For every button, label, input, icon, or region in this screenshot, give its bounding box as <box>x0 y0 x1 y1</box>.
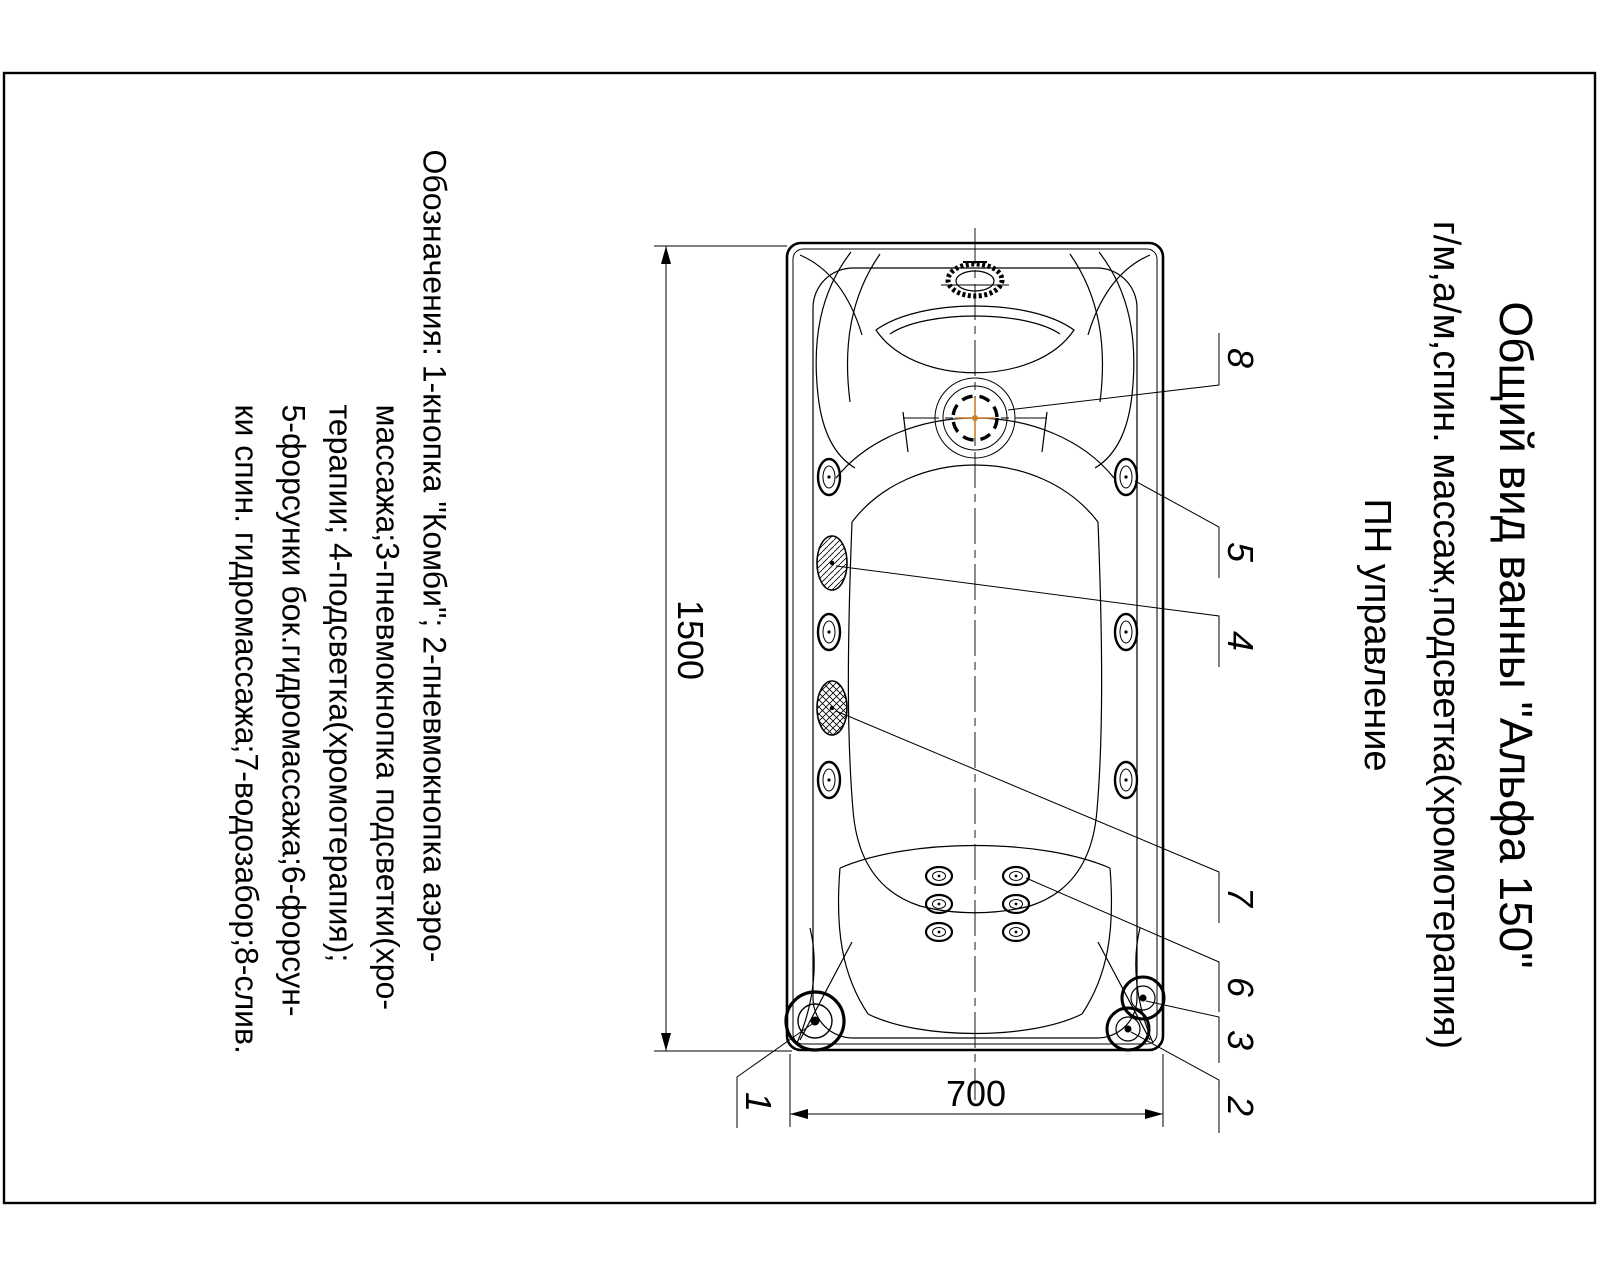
side-jet <box>818 762 840 798</box>
legend-line: терапии; 4-подсветка(хромотерапия); <box>317 150 364 1200</box>
legend-line: ки спин. гидромассажа;7-водозабор;8-слив… <box>223 150 270 1200</box>
back-jet <box>926 923 952 941</box>
side-jet <box>818 614 840 650</box>
legend: Обозначения: 1-кнопка "Комби"; 2-пневмок… <box>223 150 458 1200</box>
side-jet <box>1115 762 1137 798</box>
combi-button <box>786 992 844 1050</box>
callout-5-label: 5 <box>1220 542 1261 563</box>
side-jets <box>818 459 1137 798</box>
dim-width-value: 700 <box>946 1073 1006 1114</box>
leader-5 <box>1135 481 1219 578</box>
callout-8-label: 8 <box>1220 348 1261 368</box>
back-jet <box>1003 923 1029 941</box>
leader-4 <box>836 566 1219 667</box>
leader-2 <box>1131 1032 1219 1133</box>
callout-7-label: 7 <box>1220 887 1261 909</box>
drawing-subtitle: г/м,а/м,спин. массаж,подсветка(хромотера… <box>1411 120 1480 1150</box>
dimension-width: 700 <box>790 1054 1163 1127</box>
callout-leaders <box>737 333 1219 1133</box>
callout-3-label: 3 <box>1220 1030 1261 1050</box>
drawing-title: Общий вид ванны "Альфа 150" <box>1480 120 1552 1150</box>
legend-line: Обозначения: 1-кнопка "Комби"; 2-пневмок… <box>411 150 458 1200</box>
dim-length-value: 1500 <box>670 600 711 680</box>
title-block: Общий вид ванны "Альфа 150" г/м,а/м,спин… <box>1342 120 1552 1150</box>
back-jets <box>926 867 1029 941</box>
callout-1-label: 1 <box>738 1092 779 1112</box>
dimension-length: 1500 <box>654 246 792 1051</box>
overflow-fitting <box>941 262 1009 296</box>
back-jet <box>1003 895 1029 913</box>
chromo-light <box>817 536 847 590</box>
leader-8 <box>1008 333 1219 410</box>
callout-2-label: 2 <box>1220 1095 1261 1116</box>
side-jet <box>1115 614 1137 650</box>
callout-6-label: 6 <box>1220 977 1261 998</box>
legend-line: 5-форсунки бок.гидромассажа;6-форсун- <box>270 150 317 1200</box>
centerlines <box>903 228 1047 1100</box>
drawing-sheet: 1500 700 8 5 4 7 6 3 2 1 Обозначения: 1-… <box>0 0 1600 1280</box>
back-jet <box>1003 867 1029 885</box>
leader-7 <box>836 711 1219 923</box>
callout-labels: 8 5 4 7 6 3 2 1 <box>738 348 1261 1116</box>
legend-line: массажа;3-пневмокнопка подсветки(хро- <box>364 150 411 1200</box>
drawing-control-note: ПН управление <box>1342 120 1411 1150</box>
water-intake <box>817 681 847 735</box>
back-jet <box>926 867 952 885</box>
side-jet <box>1115 459 1137 495</box>
callout-4-label: 4 <box>1220 631 1261 651</box>
